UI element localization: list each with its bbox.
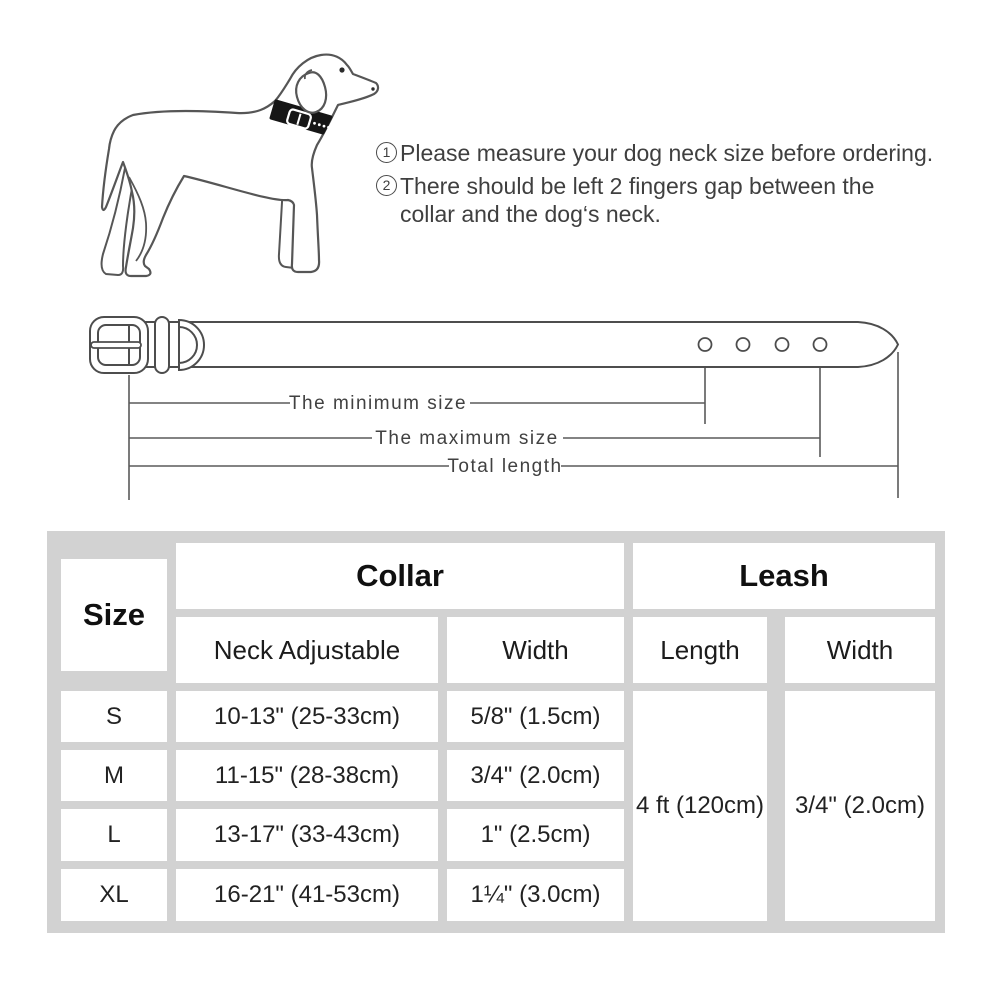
strap-keeper bbox=[155, 317, 169, 373]
dog-ear bbox=[296, 72, 326, 112]
row-m-neck: 11-15" (28-38cm) bbox=[176, 750, 438, 801]
instruction-item: 1 Please measure your dog neck size befo… bbox=[376, 139, 951, 167]
circled-number-1: 1 bbox=[376, 142, 397, 163]
instructions-list: 1 Please measure your dog neck size befo… bbox=[376, 139, 951, 233]
row-l-neck: 13-17" (33-43cm) bbox=[176, 809, 438, 861]
header-leash-length: Length bbox=[633, 617, 767, 683]
row-m-width: 3/4" (2.0cm) bbox=[447, 750, 624, 801]
measurement-lines bbox=[129, 352, 898, 500]
label-minimum-size: The minimum size bbox=[289, 393, 467, 414]
header-leash: Leash bbox=[633, 543, 935, 609]
row-l-width: 1" (2.5cm) bbox=[447, 809, 624, 861]
row-s-size: S bbox=[61, 691, 167, 742]
header-collar: Collar bbox=[176, 543, 624, 609]
buckle-prong bbox=[91, 342, 141, 348]
row-l-size: L bbox=[61, 809, 167, 861]
dog-eye bbox=[339, 67, 344, 72]
instruction-item: 2 There should be left 2 fingers gap bet… bbox=[376, 172, 951, 228]
row-xl-neck: 16-21" (41-53cm) bbox=[176, 869, 438, 921]
dog-outline bbox=[102, 55, 378, 276]
header-leash-width: Width bbox=[785, 617, 935, 683]
dog-illustration bbox=[85, 50, 385, 285]
label-maximum-size: The maximum size bbox=[375, 428, 558, 449]
leash-length-value: 4 ft (120cm) bbox=[633, 691, 767, 921]
header-neck-adjustable: Neck Adjustable bbox=[176, 617, 438, 683]
row-xl-size: XL bbox=[61, 869, 167, 921]
collar-measurement-diagram: The minimum size The maximum size Total … bbox=[60, 300, 940, 515]
instruction-text: Please measure your dog neck size before… bbox=[400, 139, 933, 167]
leash-width-value: 3/4" (2.0cm) bbox=[785, 691, 935, 921]
instruction-text: There should be left 2 fingers gap betwe… bbox=[400, 172, 874, 228]
row-m-size: M bbox=[61, 750, 167, 801]
header-collar-width: Width bbox=[447, 617, 624, 683]
circled-number-2: 2 bbox=[376, 175, 397, 196]
size-chart-table: Size Collar Leash Neck Adjustable Width … bbox=[47, 531, 945, 933]
dog-nose-dot bbox=[371, 87, 374, 90]
label-total-length: Total length bbox=[447, 456, 562, 477]
row-xl-width: 1¼" (3.0cm) bbox=[447, 869, 624, 921]
row-s-neck: 10-13" (25-33cm) bbox=[176, 691, 438, 742]
header-size: Size bbox=[61, 559, 167, 671]
row-s-width: 5/8" (1.5cm) bbox=[447, 691, 624, 742]
